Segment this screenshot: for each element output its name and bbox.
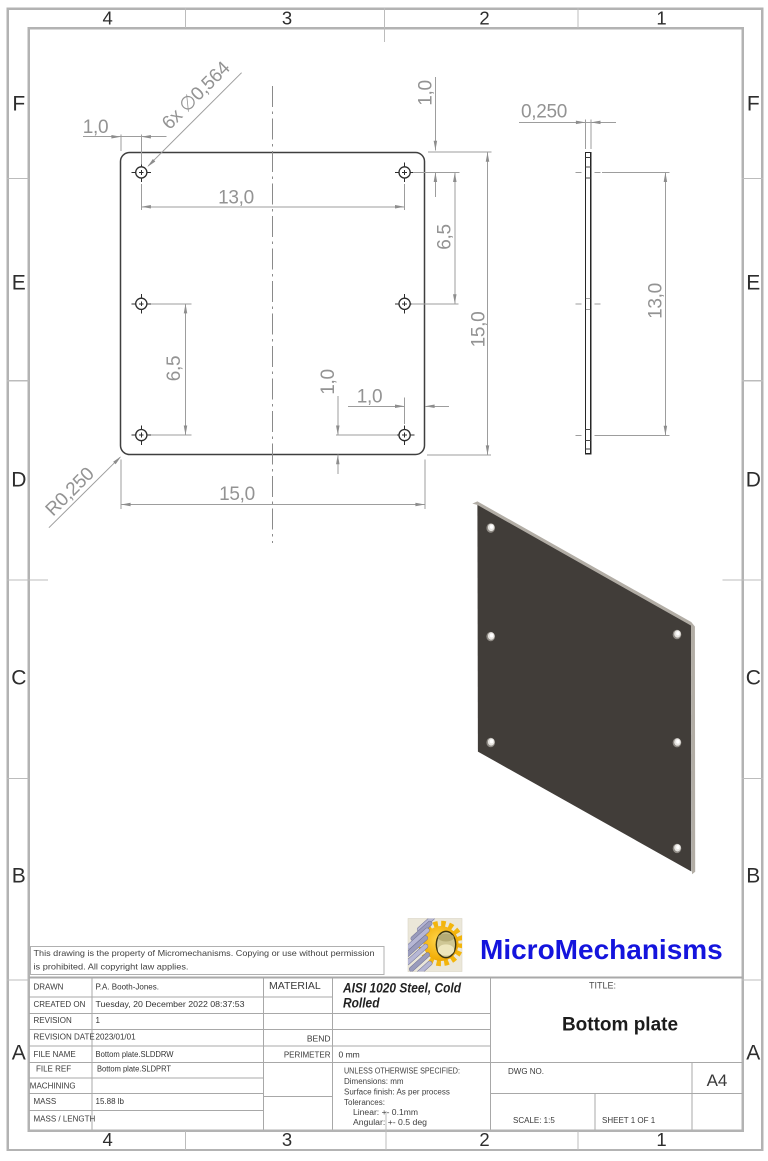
- svg-text:BEND: BEND: [307, 1034, 331, 1044]
- svg-text:3: 3: [282, 8, 292, 29]
- svg-text:DWG NO.: DWG NO.: [508, 1067, 544, 1076]
- svg-text:A: A: [12, 1041, 26, 1064]
- svg-text:2: 2: [479, 1129, 489, 1150]
- svg-text:C: C: [746, 666, 761, 689]
- svg-text:MATERIAL: MATERIAL: [269, 980, 321, 992]
- svg-text:0,250: 0,250: [521, 101, 567, 122]
- svg-text:F: F: [12, 93, 25, 116]
- svg-text:TITLE:: TITLE:: [589, 981, 616, 991]
- svg-text:E: E: [12, 271, 26, 294]
- svg-text:Surface finish: As per process: Surface finish: As per process: [344, 1088, 450, 1097]
- svg-text:1,0: 1,0: [83, 117, 109, 138]
- svg-text:SCALE: 1:5: SCALE: 1:5: [513, 1116, 555, 1125]
- svg-text:Bottom plate.SLDDRW: Bottom plate.SLDDRW: [96, 1050, 174, 1059]
- svg-text:REVISION DATE: REVISION DATE: [34, 1033, 95, 1042]
- svg-text:A: A: [746, 1041, 760, 1064]
- svg-text:F: F: [747, 93, 760, 116]
- svg-text:FILE NAME: FILE NAME: [34, 1050, 76, 1059]
- svg-text:1: 1: [656, 1129, 666, 1150]
- svg-text:D: D: [746, 468, 761, 491]
- svg-text:15.88 lb: 15.88 lb: [96, 1097, 125, 1106]
- svg-text:1: 1: [656, 8, 666, 29]
- svg-text:PERIMETER: PERIMETER: [284, 1051, 331, 1060]
- svg-text:3: 3: [282, 1129, 292, 1150]
- svg-text:2023/01/01: 2023/01/01: [96, 1033, 137, 1042]
- svg-text:Tuesday, 20 December 2022 08:3: Tuesday, 20 December 2022 08:37:53: [96, 1000, 246, 1009]
- svg-text:Bottom plate: Bottom plate: [562, 1014, 678, 1035]
- svg-text:2: 2: [479, 8, 489, 29]
- svg-text:REVISION: REVISION: [34, 1016, 72, 1025]
- svg-text:MicroMechanisms: MicroMechanisms: [480, 934, 723, 965]
- svg-text:is prohibited. All copyright l: is prohibited. All copyright law applies…: [34, 962, 189, 972]
- svg-text:Dimensions: mm: Dimensions: mm: [344, 1077, 404, 1086]
- svg-text:Linear: +- 0.1mm: Linear: +- 0.1mm: [353, 1108, 418, 1117]
- svg-text:MACHINING: MACHINING: [30, 1082, 76, 1091]
- svg-text:MASS: MASS: [34, 1097, 57, 1106]
- svg-text:Rolled: Rolled: [343, 996, 380, 1011]
- svg-text:15,0: 15,0: [219, 484, 255, 505]
- svg-text:15,0: 15,0: [469, 312, 490, 348]
- svg-text:1,0: 1,0: [318, 369, 339, 395]
- svg-text:Angular: +- 0.5 deg: Angular: +- 0.5 deg: [353, 1118, 427, 1127]
- svg-text:1,0: 1,0: [416, 80, 437, 106]
- svg-text:CREATED ON: CREATED ON: [34, 1000, 86, 1009]
- svg-text:Tolerances:: Tolerances:: [344, 1098, 385, 1107]
- svg-text:UNLESS OTHERWISE SPECIFIED:: UNLESS OTHERWISE SPECIFIED:: [344, 1067, 460, 1076]
- svg-text:FILE REF: FILE REF: [36, 1064, 71, 1073]
- svg-text:MASS / LENGTH: MASS / LENGTH: [34, 1114, 96, 1123]
- svg-text:1: 1: [96, 1016, 101, 1025]
- svg-text:B: B: [12, 864, 26, 887]
- svg-text:13,0: 13,0: [645, 283, 666, 319]
- svg-text:SHEET 1 OF 1: SHEET 1 OF 1: [602, 1116, 656, 1125]
- svg-text:E: E: [746, 271, 760, 294]
- svg-text:This drawing is the property o: This drawing is the property of Micromec…: [34, 948, 375, 958]
- svg-text:4: 4: [102, 1129, 112, 1150]
- svg-text:Bottom plate.SLDPRT: Bottom plate.SLDPRT: [97, 1064, 171, 1073]
- svg-text:C: C: [11, 666, 26, 689]
- svg-text:A4: A4: [707, 1071, 728, 1090]
- svg-text:13,0: 13,0: [218, 188, 254, 209]
- svg-text:B: B: [746, 864, 760, 887]
- svg-text:D: D: [11, 468, 26, 491]
- svg-text:P.A. Booth-Jones.: P.A. Booth-Jones.: [96, 983, 159, 992]
- svg-text:6,5: 6,5: [164, 356, 185, 382]
- svg-text:DRAWN: DRAWN: [34, 983, 64, 992]
- svg-text:4: 4: [102, 8, 112, 29]
- svg-text:1,0: 1,0: [357, 386, 383, 407]
- svg-text:AISI 1020 Steel, Cold: AISI 1020 Steel, Cold: [342, 981, 462, 996]
- svg-text:0 mm: 0 mm: [339, 1050, 360, 1060]
- svg-text:6,5: 6,5: [435, 224, 456, 250]
